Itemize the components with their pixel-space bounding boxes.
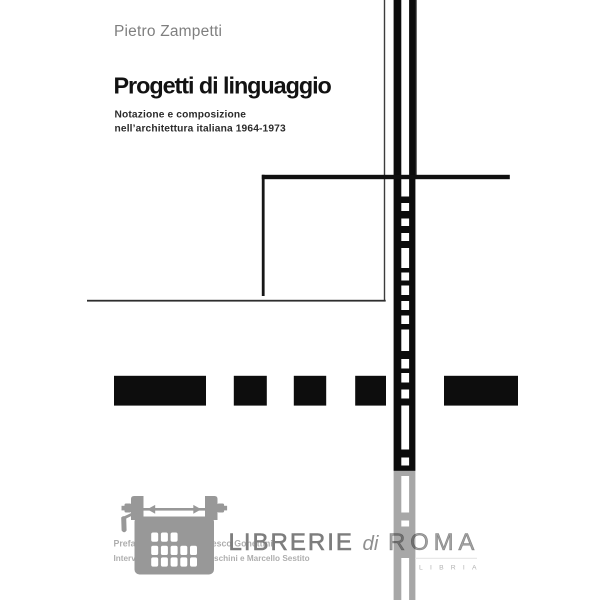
svg-text:di: di [363, 532, 380, 555]
svg-text:LIBRERIE: LIBRERIE [229, 529, 354, 556]
svg-text:Pietro Zampetti: Pietro Zampetti [114, 23, 222, 40]
svg-text:Progetti di linguaggio: Progetti di linguaggio [114, 73, 332, 99]
svg-text:ROMA: ROMA [388, 529, 479, 556]
svg-text:Notazione e composizione: Notazione e composizione [115, 109, 247, 120]
svg-text:LIBRIA: LIBRIA [419, 565, 484, 572]
svg-text:nell’architettura italiana 196: nell’architettura italiana 1964-1973 [115, 123, 286, 134]
